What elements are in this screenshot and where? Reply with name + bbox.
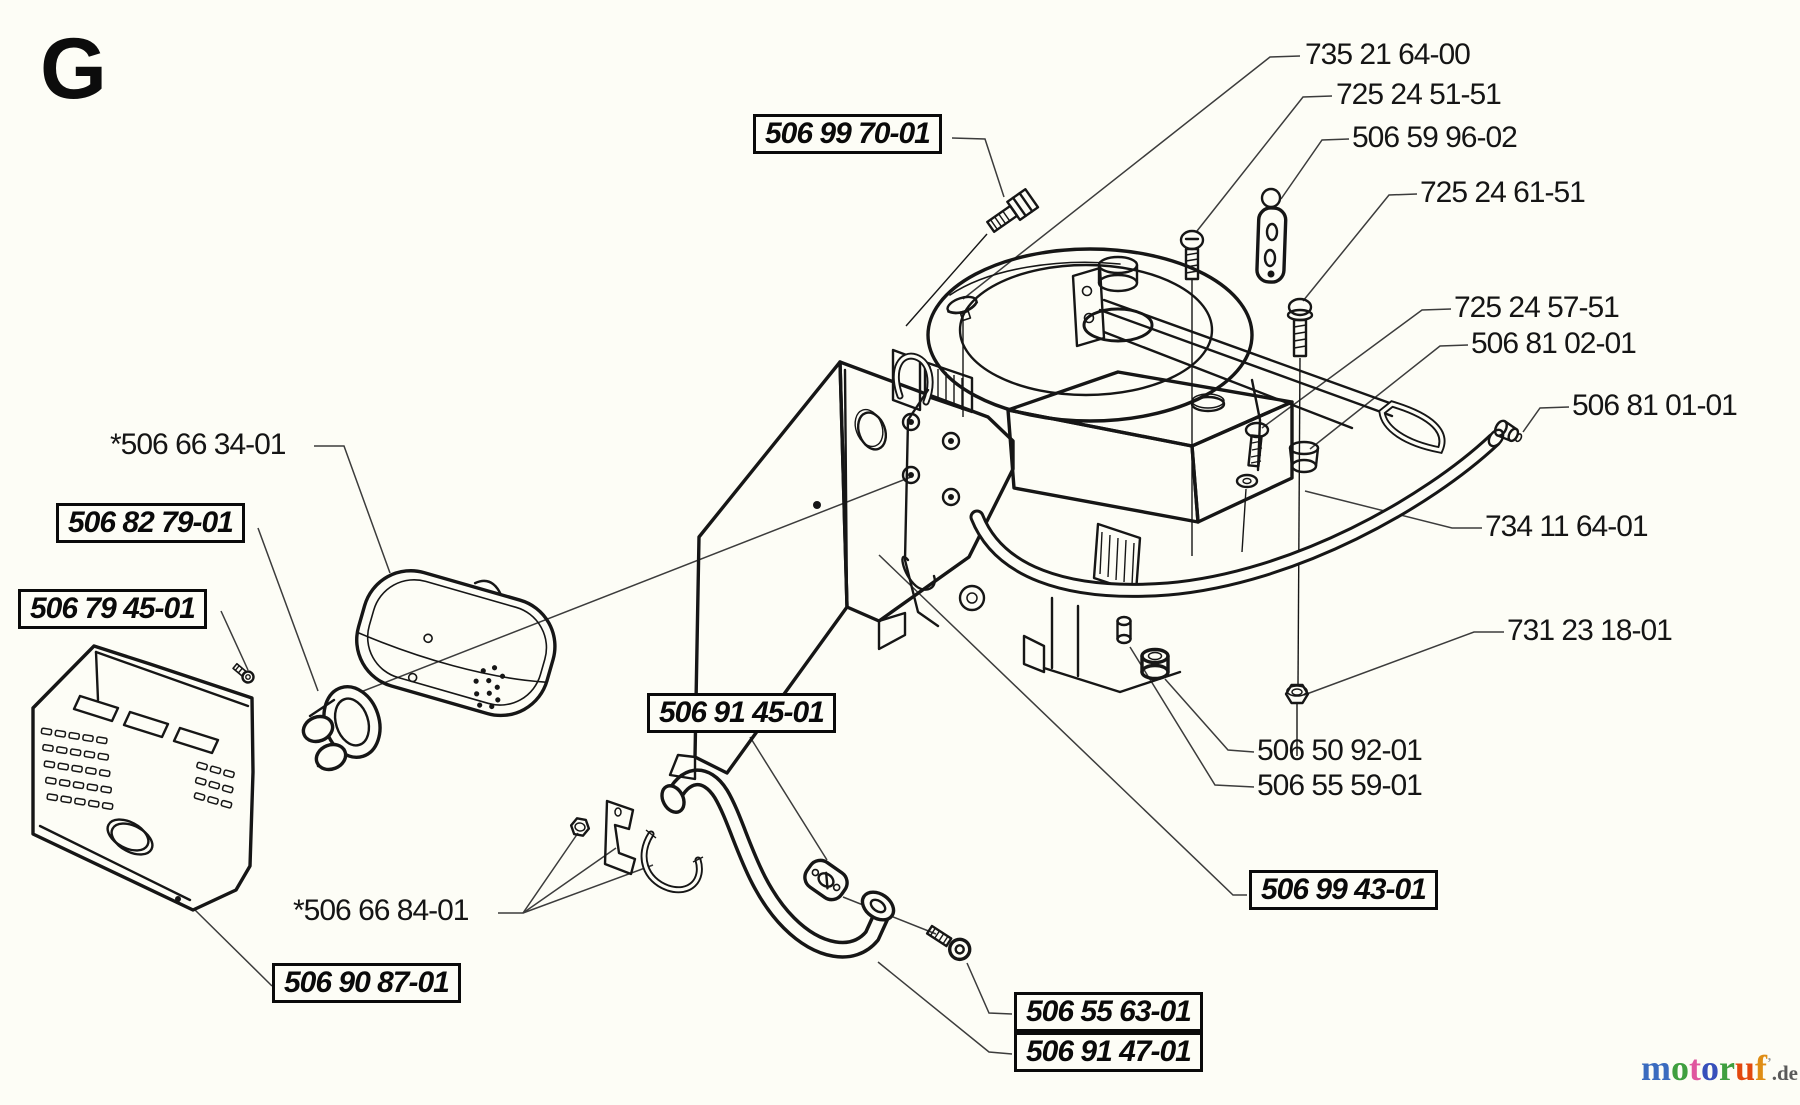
part-label: *506 66 84-01	[293, 894, 469, 927]
lock-nut	[1286, 685, 1308, 703]
hex-bolt-top	[984, 189, 1038, 236]
clamp-nut	[570, 818, 591, 837]
part-label: 734 11 64-01	[1485, 510, 1648, 543]
part-label: 506 59 96-02	[1352, 121, 1517, 154]
upper-bracket	[893, 350, 972, 412]
part-label-boxed[interactable]: 506 55 63-01	[1014, 992, 1203, 1032]
pipe-flange	[857, 886, 899, 925]
logo-letter: f	[1755, 1048, 1767, 1088]
flange-screw	[924, 921, 973, 963]
muffler-deflector	[300, 679, 389, 773]
section-letter: G	[40, 26, 107, 112]
part-label-boxed[interactable]: 506 91 45-01	[647, 693, 836, 733]
screw-medium	[1288, 299, 1312, 356]
frame-rails	[977, 268, 1506, 590]
part-label: 735 21 64-00	[1305, 38, 1470, 71]
part-label: *506 66 34-01	[110, 428, 286, 461]
logo-letter: o	[1701, 1048, 1719, 1088]
part-label: 506 55 59-01	[1257, 769, 1422, 802]
spacer-sleeve	[1118, 617, 1131, 643]
part-label-boxed[interactable]: 506 99 43-01	[1249, 870, 1438, 910]
flat-head-screw	[946, 294, 981, 324]
parts-diagram-page: G 735 21 64-00 725 24 51-51 506 59 96-02…	[0, 0, 1800, 1105]
part-label-boxed[interactable]: 506 82 79-01	[56, 503, 245, 543]
part-label-boxed[interactable]: 506 99 70-01	[753, 114, 942, 154]
part-label-boxed[interactable]: 506 79 45-01	[18, 589, 207, 629]
washer	[1237, 475, 1257, 487]
logo-letter: t	[1689, 1048, 1701, 1088]
muffler-cover	[31, 646, 253, 910]
part-label: 725 24 51-51	[1336, 78, 1501, 111]
part-label: 506 81 01-01	[1572, 389, 1737, 422]
part-label: 506 81 02-01	[1471, 327, 1636, 360]
muffler	[345, 551, 568, 727]
logo-letter: u	[1735, 1048, 1755, 1088]
motoruf-logo[interactable]: motoruf’.de	[1641, 1050, 1798, 1086]
screw-short	[1237, 423, 1268, 487]
part-label: 731 23 18-01	[1507, 614, 1672, 647]
part-label-boxed[interactable]: 506 91 47-01	[1014, 1032, 1203, 1072]
logo-letter: o	[1671, 1048, 1689, 1088]
exhaust-pipe	[658, 777, 899, 949]
deflector-screw	[231, 662, 255, 685]
diagram-canvas	[0, 0, 1800, 1105]
logo-tld: .de	[1772, 1061, 1798, 1085]
logo-letter: r	[1719, 1048, 1735, 1088]
part-label: 725 24 57-51	[1454, 291, 1619, 324]
chain-link	[1257, 189, 1287, 282]
part-label: 506 50 92-01	[1257, 734, 1422, 767]
part-label-boxed[interactable]: 506 90 87-01	[272, 963, 461, 1003]
u-bolt	[644, 830, 703, 890]
clamp-bracket	[605, 801, 635, 874]
part-label: 725 24 61-51	[1420, 176, 1585, 209]
logo-letter: m	[1641, 1048, 1671, 1088]
front-frame-tube	[977, 440, 1494, 590]
